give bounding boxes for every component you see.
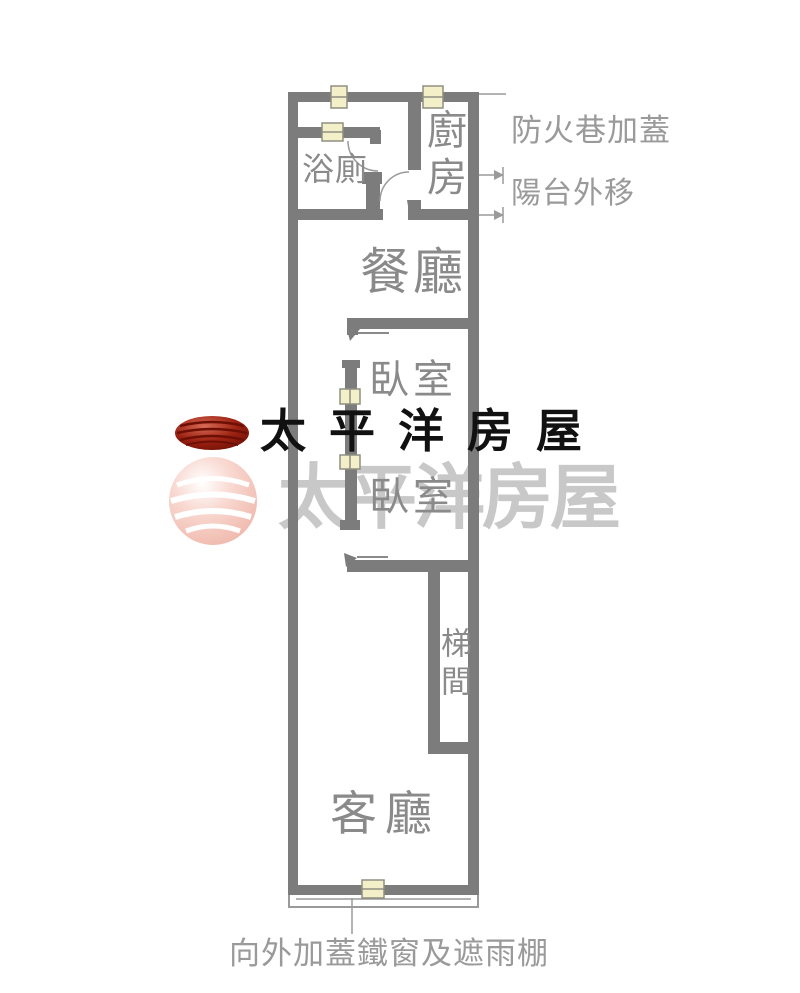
pacific-sphere-logo-light-icon xyxy=(167,454,260,547)
wall-exterior-top xyxy=(288,92,479,102)
dimension-arrowhead-bottom-icon xyxy=(494,210,504,220)
wall-dining-door-jamb xyxy=(347,318,358,335)
wall-bathroom-door-jamb xyxy=(370,130,381,144)
annotation-fire-lane: 防火巷加蓋 xyxy=(511,116,671,147)
annotation-balcony: 陽台外移 xyxy=(511,179,635,209)
room-label-living: 客廳 xyxy=(330,791,440,838)
room-label-bedroom-lower: 臥室 xyxy=(369,477,457,517)
wall-stairwell-south xyxy=(428,742,479,754)
wall-bathroom-south xyxy=(288,209,383,220)
wall-bedroom-west-cap-bottom xyxy=(340,520,360,530)
watermark-primary-brand-text: 太平洋房屋 xyxy=(260,408,605,454)
room-label-bathroom: 浴廁 xyxy=(302,153,368,185)
wall-bedroom-lower-south xyxy=(347,560,479,572)
wall-dining-south xyxy=(347,318,479,329)
wall-kitchen-south xyxy=(408,209,479,220)
floorplan-image: 太平洋房屋 xyxy=(0,0,800,993)
iron-window-strip-outline xyxy=(289,895,478,907)
room-label-bedroom-upper: 臥室 xyxy=(369,360,457,400)
dimension-arrowhead-middle-icon xyxy=(494,170,504,180)
room-label-kitchen: 廚房 xyxy=(423,109,463,203)
wall-exterior-bottom xyxy=(288,885,479,895)
annotation-iron-window: 向外加蓋鐵窗及遮雨棚 xyxy=(229,939,549,970)
wall-bathroom-north xyxy=(288,127,380,138)
room-label-stairwell: 梯間 xyxy=(437,627,468,703)
room-label-dining: 餐廳 xyxy=(360,247,466,297)
kitchen-door-arc xyxy=(380,172,409,201)
pacific-sphere-logo-red-icon xyxy=(172,413,252,453)
